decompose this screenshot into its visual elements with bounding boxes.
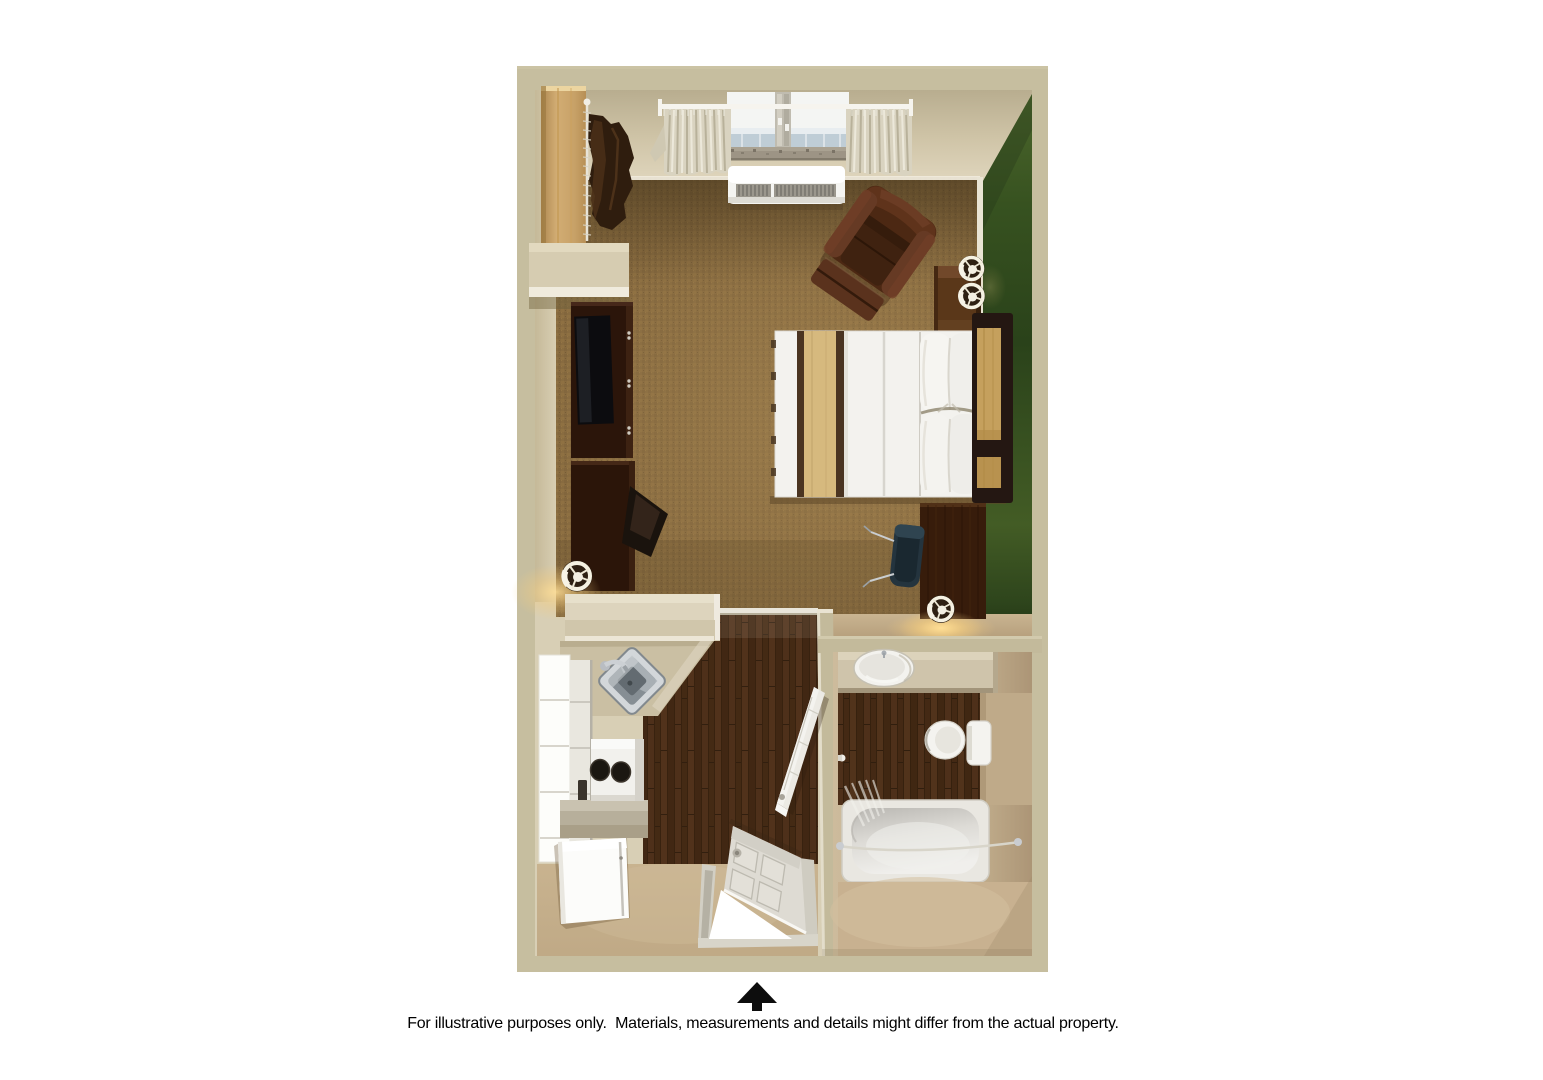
svg-text:For illustrative purposes only: For illustrative purposes only. Material… [407, 1015, 1119, 1032]
